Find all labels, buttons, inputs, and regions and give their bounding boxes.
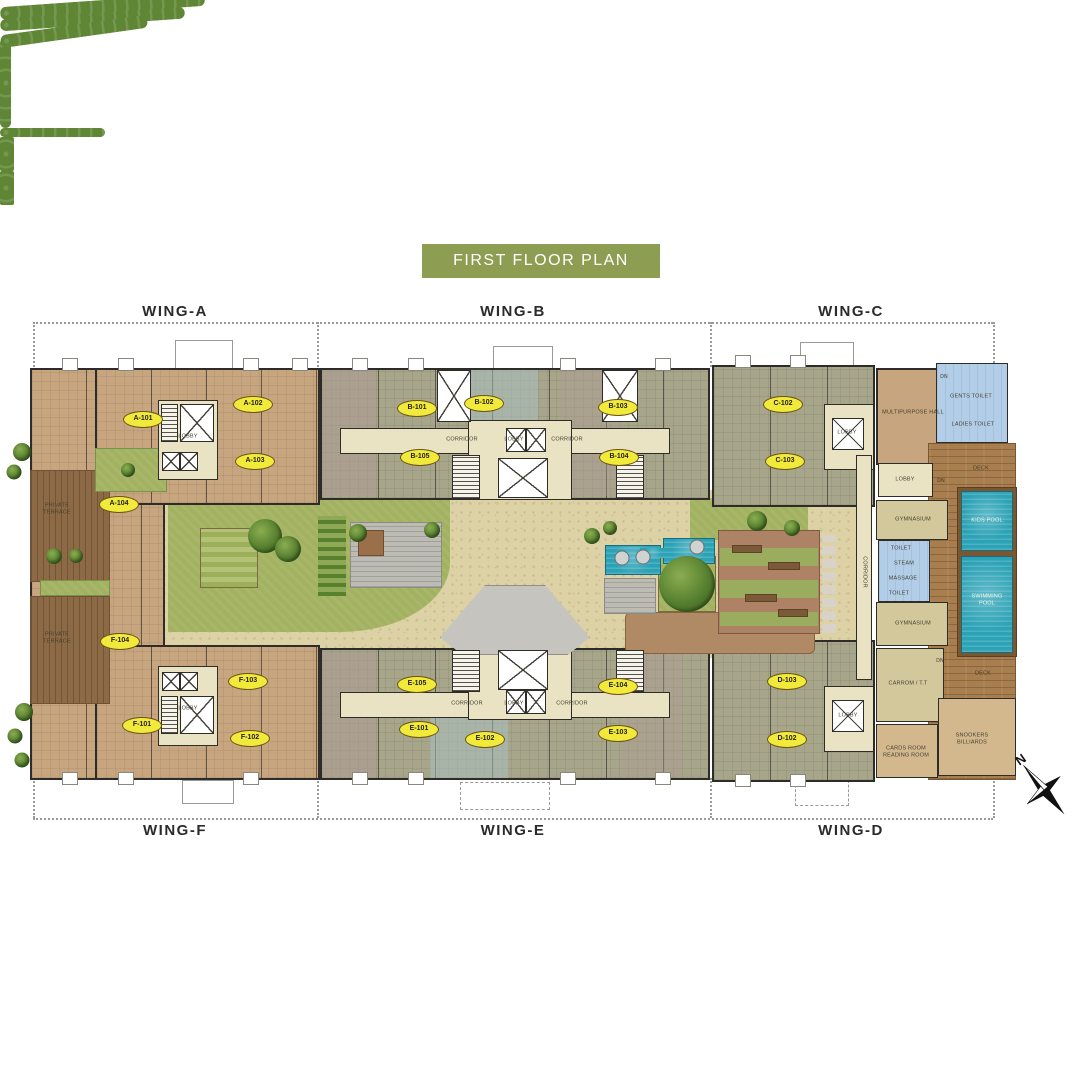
unit-label-b101: B-101 (397, 400, 437, 417)
wing-f-lift-shaft (180, 696, 214, 734)
corridor-label-e2: CORRIDOR (556, 701, 588, 708)
wing-b-label: WING-B (480, 303, 546, 320)
unit-label-b104: B-104 (599, 449, 639, 466)
private-terrace-label-1: PRIVATE TERRACE (34, 502, 80, 515)
hedge-wing-b (0, 128, 105, 137)
balcony (243, 772, 259, 785)
unit-label-d103: D-103 (767, 673, 807, 690)
private-terrace-label-2: PRIVATE TERRACE (34, 631, 80, 644)
cards-reading-label: CARDS ROOM READING ROOM (881, 745, 931, 758)
gents-toilet-label: GENTS TOILET (941, 394, 1001, 401)
unit-label-e104: E-104 (598, 678, 638, 695)
swimming-pool-label: SWIMMING POOL (969, 593, 1005, 606)
amenity-lobby-label: LOBBY (895, 477, 914, 484)
boundary-ab-top (317, 322, 319, 370)
tree (747, 511, 767, 531)
steam-label: STEAM (894, 561, 914, 568)
toilet-2-label: TOILET (889, 591, 909, 598)
massage-label: MASSAGE (889, 576, 918, 583)
wing-f-stairs (161, 696, 178, 734)
balcony (560, 358, 576, 371)
tree (584, 528, 600, 544)
lobby-label-wing-a: LOBBY (178, 434, 197, 441)
tree-large (659, 556, 715, 612)
corridor-label-b1: CORRIDOR (446, 437, 478, 444)
tree (424, 522, 440, 538)
tree (46, 548, 62, 564)
planter-2 (0, 171, 14, 205)
unit-label-f104: F-104 (100, 633, 140, 650)
carrom-label: CARROM / T.T (878, 681, 938, 688)
wing-e-label: WING-E (481, 822, 546, 839)
tree (275, 536, 301, 562)
unit-label-e105: E-105 (397, 676, 437, 693)
unit-label-e102: E-102 (465, 731, 505, 748)
wing-f-label: WING-F (143, 822, 207, 839)
unit-label-a101: A-101 (123, 411, 163, 428)
balcony (655, 772, 671, 785)
deck-label-2: DECK (975, 671, 991, 678)
bench-3 (745, 594, 777, 602)
balcony (655, 358, 671, 371)
balcony (352, 358, 368, 371)
unit-label-f101: F-101 (122, 717, 162, 734)
balcony (560, 772, 576, 785)
balcony (243, 358, 259, 371)
balcony (735, 355, 751, 368)
wing-b-lift-2 (526, 428, 546, 452)
floor-plan-canvas: FIRST FLOOR PLAN WING-A WING-B WING-C WI… (0, 0, 1080, 1080)
hedge-vertical (0, 38, 11, 128)
lobby-label-wing-d: LOBBY (838, 713, 857, 720)
balcony (292, 358, 308, 371)
north-compass: N (1014, 752, 1074, 822)
tree (603, 521, 617, 535)
dn-label-3: DN (936, 658, 944, 664)
unit-label-e101: E-101 (399, 721, 439, 738)
bench-2 (768, 562, 800, 570)
balcony (790, 774, 806, 787)
balcony (62, 772, 78, 785)
unit-label-e103: E-103 (598, 725, 638, 742)
wing-f-canopy (182, 780, 234, 804)
wing-c-label: WING-C (818, 303, 884, 320)
unit-label-b102: B-102 (464, 395, 504, 412)
boundary-ed-bottom (710, 778, 712, 818)
tree (13, 443, 31, 461)
tree (7, 465, 22, 480)
boundary-bottom-line (33, 818, 993, 820)
tree (15, 753, 30, 768)
corridor-label-b2: CORRIDOR (551, 437, 583, 444)
wing-b-shaft-west (437, 370, 471, 422)
wing-d-label: WING-D (818, 822, 884, 839)
toilet-1-label: TOILET (891, 546, 911, 553)
wing-f-lift-2 (180, 672, 198, 691)
planter-1 (0, 137, 14, 171)
corridor-label-e1: CORRIDOR (451, 701, 483, 708)
lobby-label-wing-f: LOBBY (178, 706, 197, 713)
wing-e-stairs-west (452, 650, 480, 692)
ladies-toilet-label: LADIES TOILET (943, 422, 1003, 429)
balcony (62, 358, 78, 371)
unit-label-f103: F-103 (228, 673, 268, 690)
unit-label-d102: D-102 (767, 731, 807, 748)
kids-pool-label: KIDS POOL (970, 518, 1004, 525)
lobby-label-wing-c: LOBBY (837, 430, 856, 437)
unit-label-c102: C-102 (763, 396, 803, 413)
unit-label-b103: B-103 (598, 399, 638, 416)
boundary-left-top (33, 322, 35, 370)
fountain-1 (615, 551, 630, 566)
boundary-fe-bottom (317, 778, 319, 818)
private-terrace-2 (30, 596, 110, 704)
gymnasium-1-label: GYMNASIUM (881, 517, 945, 524)
gymnasium-2-label: GYMNASIUM (881, 621, 945, 628)
balcony (118, 358, 134, 371)
tree (69, 549, 83, 563)
deck-label-1: DECK (973, 466, 989, 473)
unit-label-b105: B-105 (400, 449, 440, 466)
wing-e-lift-2 (526, 690, 546, 714)
wing-a-lift-1 (162, 452, 180, 471)
tree (8, 729, 23, 744)
snookers-label: SNOOKERS BILLIARDS (949, 732, 995, 745)
tree (349, 524, 367, 542)
balcony (408, 772, 424, 785)
unit-label-a102: A-102 (233, 396, 273, 413)
balcony (352, 772, 368, 785)
page-title: FIRST FLOOR PLAN (422, 244, 660, 278)
boundary-right-top (993, 322, 995, 366)
bench-4 (778, 609, 808, 617)
balcony (408, 358, 424, 371)
wing-e-shaft-north (498, 650, 548, 690)
wing-a-lift-2 (180, 452, 198, 471)
dn-label-2: DN (937, 478, 945, 484)
wing-a-stairs (161, 404, 178, 442)
wing-e-entry (460, 782, 550, 810)
boundary-bc-top (710, 322, 712, 367)
boundary-right-bottom (993, 778, 995, 818)
water-deck (604, 578, 656, 614)
fountain-3 (690, 540, 705, 555)
balcony (118, 772, 134, 785)
unit-label-c103: C-103 (765, 453, 805, 470)
boundary-left-bottom (33, 778, 35, 818)
unit-label-a104: A-104 (99, 496, 139, 513)
wing-b-shaft-south (498, 458, 548, 498)
wing-a-label: WING-A (142, 303, 208, 320)
wing-a-canopy (175, 340, 233, 370)
lobby-label-wing-e: LOBBY (504, 701, 523, 708)
corridor-vertical-label: CORRIDOR (861, 556, 868, 588)
unit-label-f102: F-102 (230, 730, 270, 747)
multipurpose-hall-label: MULTIPURPOSE HALL (876, 410, 950, 417)
unit-label-a103: A-103 (235, 453, 275, 470)
bench-1 (732, 545, 762, 553)
planting-rows (318, 516, 346, 596)
lobby-label-wing-b: LOBBY (504, 437, 523, 444)
stepping-stones (822, 535, 836, 633)
tree (121, 463, 135, 477)
terrace-garden-2 (40, 580, 110, 596)
boundary-top-line (33, 322, 993, 324)
fountain-2 (636, 550, 651, 565)
tree (784, 520, 800, 536)
balcony (790, 355, 806, 368)
wing-b-stairs-west (452, 455, 480, 499)
tree (15, 703, 33, 721)
balcony (735, 774, 751, 787)
dn-label-1: DN (940, 374, 948, 380)
wing-f-lift-1 (162, 672, 180, 691)
